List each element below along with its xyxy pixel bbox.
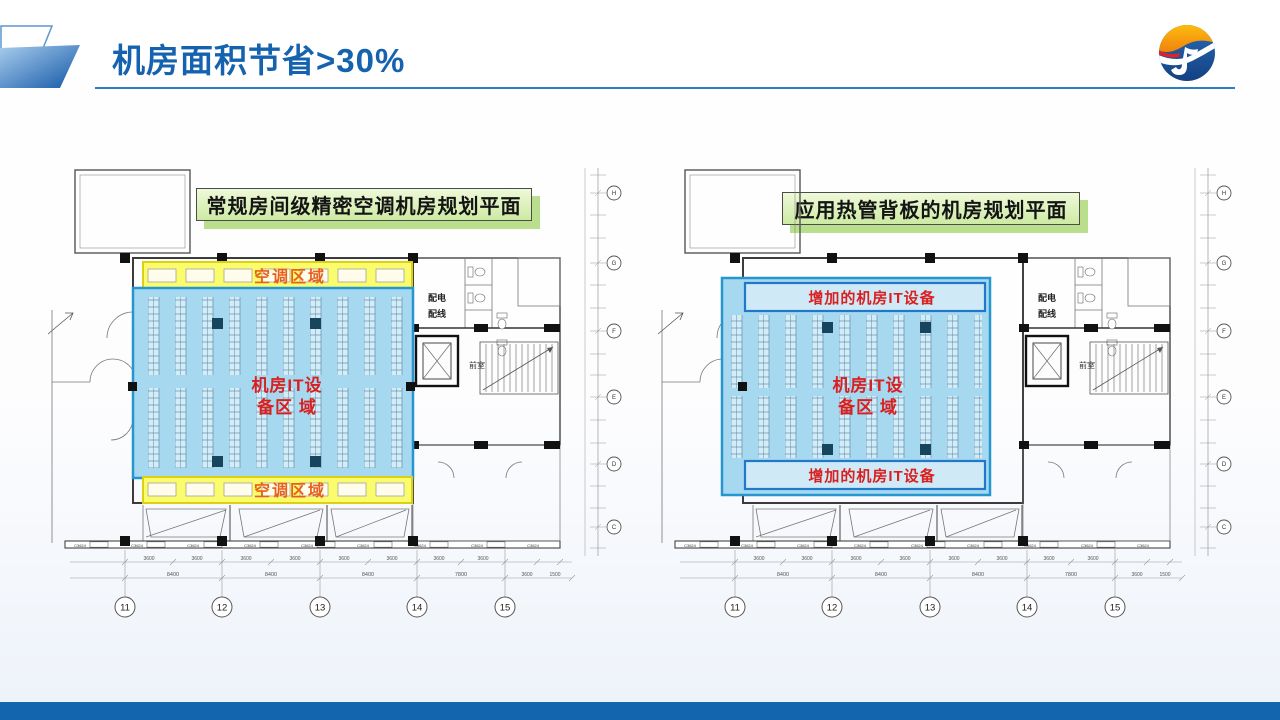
ac-zone-top-label: 空调区域	[254, 267, 326, 286]
floor-plan-right: 增加的机房IT设备 增加的机房IT设备 机房IT设 备区 域	[650, 160, 1250, 620]
floor-plan-left: 空调区域 机房IT设 备区 域 空调区域	[40, 160, 640, 620]
it-zone-label-line2: 备区 域	[256, 397, 317, 417]
ac-zone-bottom-label: 空调区域	[254, 481, 326, 500]
header-decoration	[0, 18, 110, 90]
page-title: 机房面积节省>30%	[112, 34, 405, 82]
footer-bar	[0, 702, 1280, 720]
added-it-top-label: 增加的机房IT设备	[808, 289, 935, 307]
it-zone-label-line1: 机房IT设	[832, 375, 903, 395]
server-racks-upper	[140, 297, 407, 375]
it-zone-label-line1: 机房IT设	[251, 375, 322, 395]
company-logo-icon	[1156, 22, 1218, 84]
title-underline	[95, 87, 1235, 89]
added-it-bottom-label: 增加的机房IT设备	[808, 467, 935, 485]
it-zone-label-line2: 备区 域	[837, 397, 898, 417]
slide: 机房面积节省>30% 常规房间级精密空调机房规划平面 应用热管背板的机房规划平面	[0, 0, 1280, 720]
